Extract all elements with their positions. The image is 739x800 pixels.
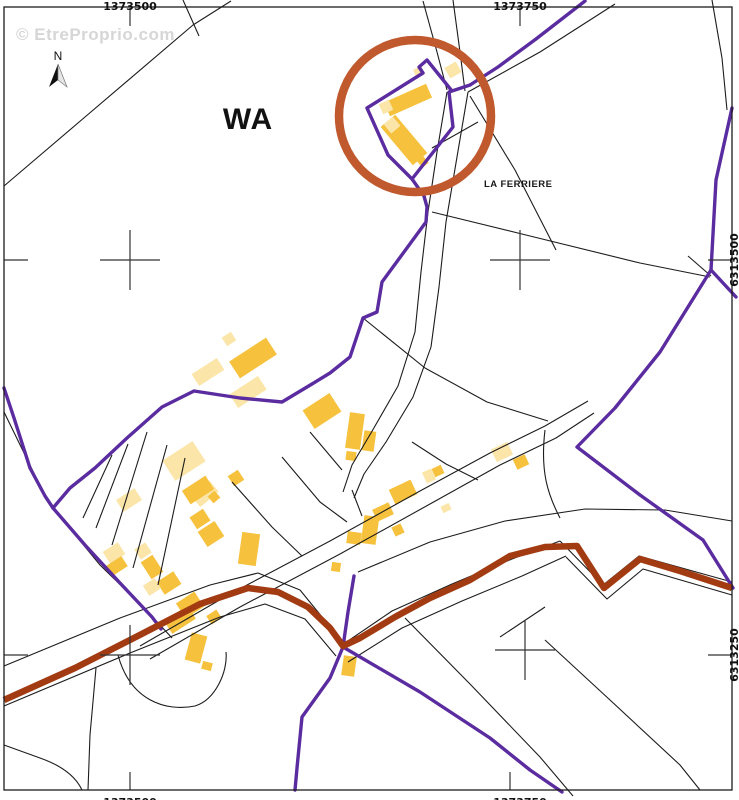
building-footprint <box>201 661 213 671</box>
north-arrow-icon <box>49 64 67 87</box>
parcel-line <box>118 652 226 707</box>
parcel-line <box>405 618 573 796</box>
parcel-line <box>158 458 185 585</box>
zone-boundary-line <box>470 1 585 85</box>
building-footprint <box>491 442 513 462</box>
parcel-line <box>500 607 545 637</box>
building-footprint <box>229 338 277 379</box>
building-footprint <box>391 523 404 536</box>
building-footprint <box>303 393 342 429</box>
building-footprint <box>444 62 461 79</box>
coordinate-label: 1373750 <box>493 0 547 13</box>
parcel-line <box>348 556 566 662</box>
parcel-line <box>88 668 96 790</box>
grid-cross <box>100 625 160 685</box>
parcel-line <box>358 509 732 572</box>
parcel-line <box>712 0 727 110</box>
zone-boundary-line <box>4 388 53 508</box>
labels-layer: © EtreProprio.com WA LA FERRIERE N 13735… <box>16 0 739 800</box>
coordinate-label: 6313250 <box>728 628 739 682</box>
grid-cross <box>495 620 555 680</box>
parcel-line <box>310 432 342 470</box>
building-footprint <box>440 503 451 513</box>
parcel-line <box>352 490 362 516</box>
building-footprint <box>331 562 341 572</box>
property-highlight-circle <box>339 40 491 192</box>
zone-boundary-line <box>343 647 562 792</box>
parcel-line <box>133 445 167 568</box>
coordinate-label: 6313500 <box>728 233 739 287</box>
building-footprint <box>384 84 432 116</box>
zone-boundary-line <box>343 576 354 647</box>
zone-boundary-line <box>295 647 343 790</box>
zone-label: WA <box>223 103 273 136</box>
highlight-layer <box>339 40 491 192</box>
building-footprint <box>228 470 245 487</box>
parcel-line <box>545 640 700 790</box>
building-footprint <box>229 376 266 408</box>
parcel-line <box>282 457 347 522</box>
parcel-line <box>183 0 199 36</box>
zone-boundaries-layer <box>4 1 736 792</box>
building-footprint <box>222 332 237 346</box>
coordinate-label: 1373500 <box>103 796 157 800</box>
coordinate-label: 1373750 <box>493 796 547 800</box>
building-footprint <box>238 532 260 566</box>
zone-boundary-line <box>53 179 427 508</box>
building-footprint <box>362 430 377 451</box>
parcel-line <box>453 0 465 91</box>
watermark: © EtreProprio.com <box>16 25 175 44</box>
parcel-line <box>363 318 548 421</box>
parcel-line <box>468 4 615 92</box>
zone-boundary-line <box>577 270 733 588</box>
parcel-line <box>412 442 478 480</box>
parcel-line <box>4 745 82 790</box>
building-footprint <box>345 412 365 450</box>
coordinate-label: 1373500 <box>103 0 157 13</box>
building-footprint <box>513 454 529 469</box>
cadastral-zoning-map: © EtreProprio.com WA LA FERRIERE N 13735… <box>0 0 739 800</box>
place-label: LA FERRIERE <box>484 179 552 190</box>
grid-cross <box>100 230 160 290</box>
north-label: N <box>54 49 63 63</box>
parcel-line <box>96 444 128 528</box>
north-arrow-dark-half <box>49 64 58 87</box>
parcel-line <box>4 412 172 638</box>
parcel-line <box>432 212 710 277</box>
north-arrow-light-half <box>58 64 67 87</box>
parcel-line <box>470 96 556 250</box>
building-footprint <box>192 358 225 386</box>
